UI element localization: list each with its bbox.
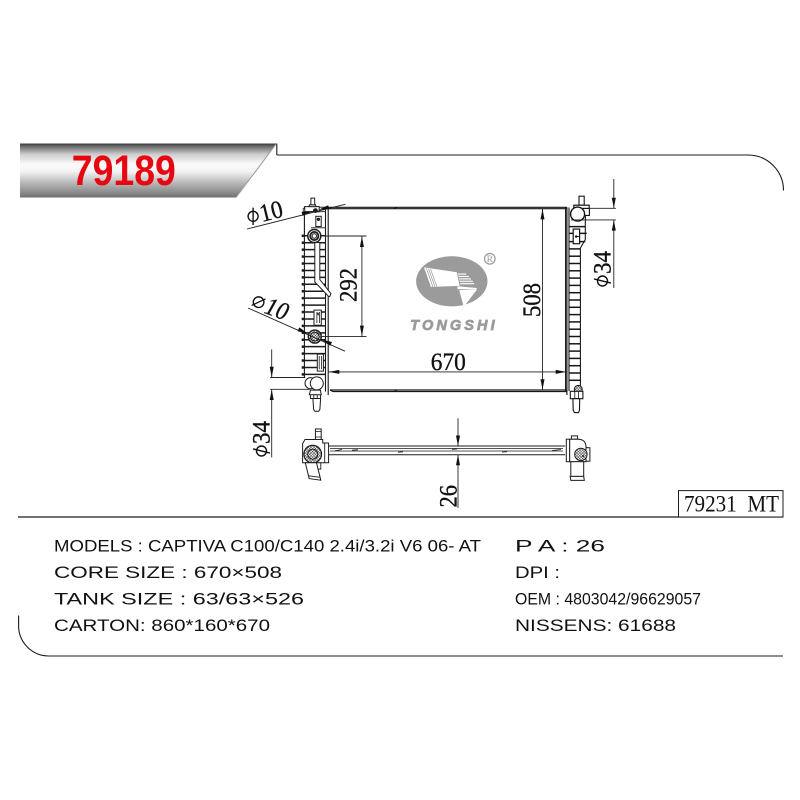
svg-text:79231 MT: 79231 MT [684,492,779,518]
svg-text:79189: 79189 [72,148,176,195]
svg-text:NISSENS: 61688: NISSENS: 61688 [515,616,676,635]
svg-text:TANK SIZE : 63/63×526: TANK SIZE : 63/63×526 [54,590,304,609]
svg-text:CARTON: 860*160*670: CARTON: 860*160*670 [54,616,270,635]
svg-text:508: 508 [519,283,546,317]
svg-text:670: 670 [431,349,466,376]
svg-text:10: 10 [261,293,292,326]
svg-text:292: 292 [336,268,363,302]
svg-text:10: 10 [257,196,286,228]
svg-text:P A : 26: P A : 26 [515,537,605,556]
svg-text:CORE SIZE : 670×508: CORE SIZE : 670×508 [54,563,282,582]
svg-text:34: 34 [248,421,275,444]
svg-text:OEM : 4803042/96629057: OEM : 4803042/96629057 [515,590,701,609]
svg-text:MODELS : CAPTIVA C100/C140 2.4: MODELS : CAPTIVA C100/C140 2.4i/3.2i V6 … [54,537,481,556]
svg-text:DPI :: DPI : [515,563,560,582]
svg-text:TONGSHI: TONGSHI [410,318,498,334]
svg-text:34: 34 [589,251,616,274]
svg-text:R: R [487,255,494,265]
